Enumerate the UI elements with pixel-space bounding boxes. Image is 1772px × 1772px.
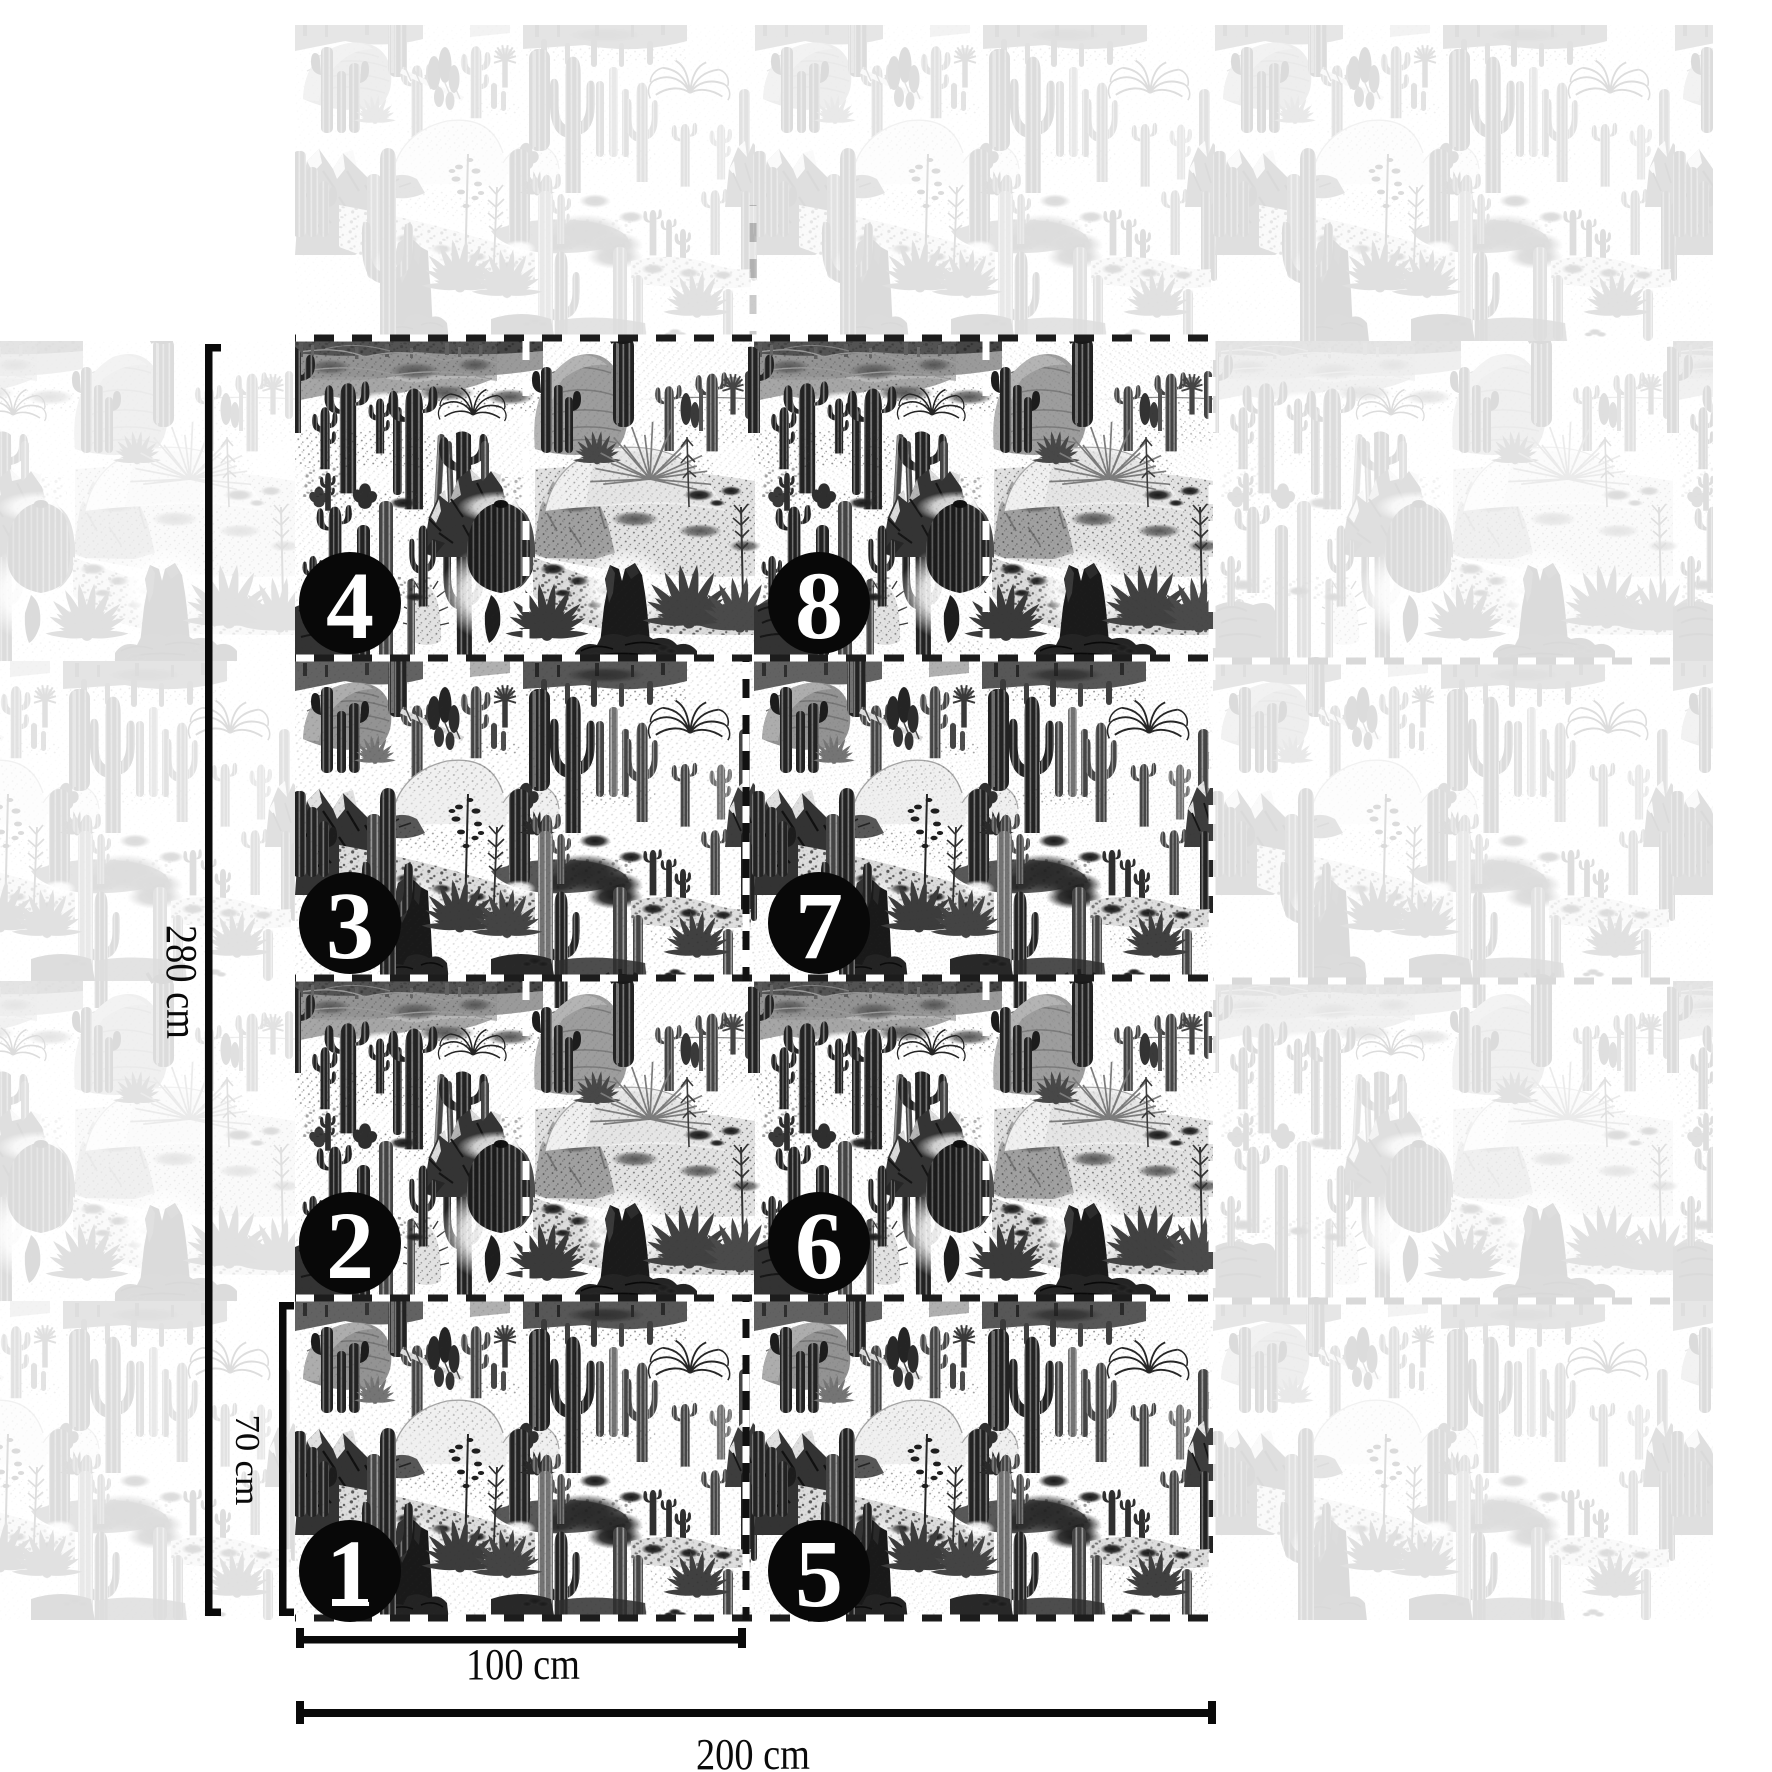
svg-text:4: 4 bbox=[326, 552, 374, 659]
svg-text:200 cm: 200 cm bbox=[696, 1730, 810, 1772]
svg-text:280 cm: 280 cm bbox=[157, 925, 206, 1039]
svg-text:1: 1 bbox=[326, 1520, 374, 1627]
svg-text:3: 3 bbox=[326, 872, 374, 979]
svg-text:6: 6 bbox=[795, 1192, 843, 1299]
svg-text:5: 5 bbox=[795, 1520, 843, 1627]
svg-text:7: 7 bbox=[795, 872, 843, 979]
svg-text:100 cm: 100 cm bbox=[466, 1640, 580, 1689]
svg-text:70 cm: 70 cm bbox=[228, 1415, 267, 1506]
svg-text:8: 8 bbox=[795, 552, 843, 659]
svg-text:2: 2 bbox=[326, 1192, 374, 1299]
